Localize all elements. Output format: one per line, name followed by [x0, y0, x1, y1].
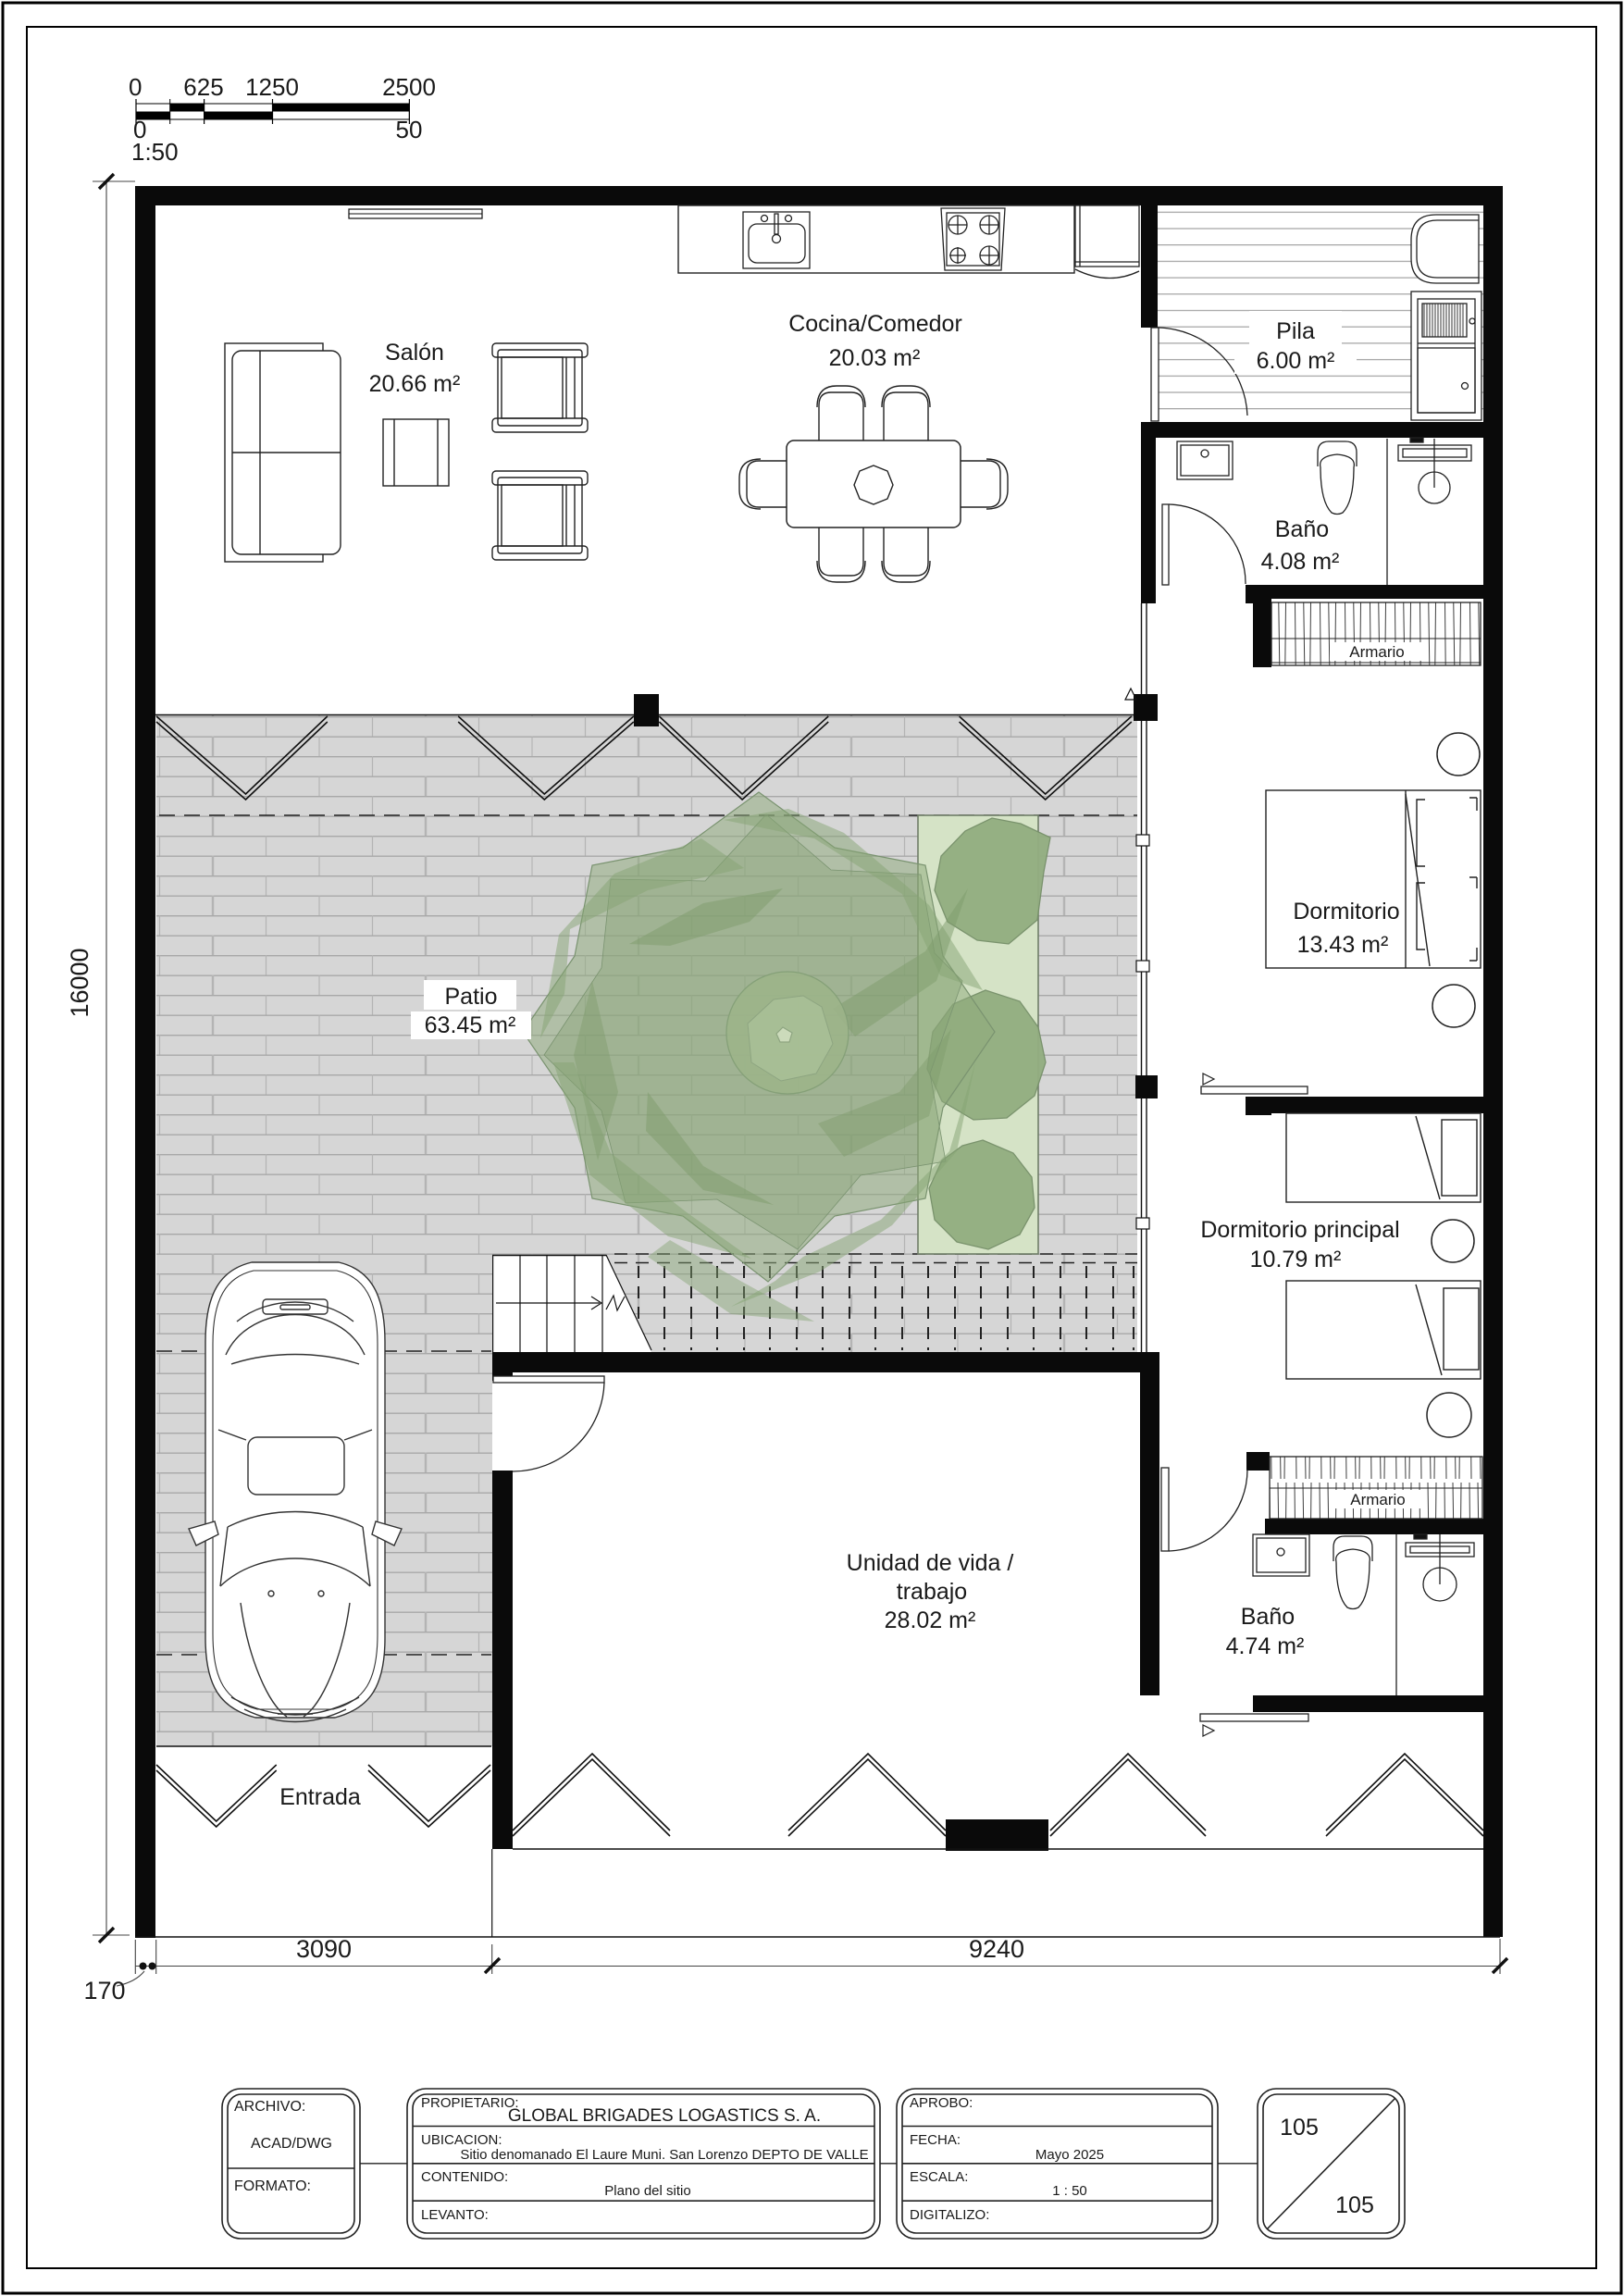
svg-text:4.74 m²: 4.74 m² [1226, 1633, 1305, 1659]
svg-text:9240: 9240 [969, 1935, 1024, 1963]
svg-text:ESCALA:: ESCALA: [910, 2169, 968, 2185]
svg-text:UBICACION:: UBICACION: [421, 2132, 502, 2148]
svg-text:0: 0 [129, 73, 142, 101]
svg-text:6.00 m²: 6.00 m² [1257, 348, 1335, 374]
svg-text:1 : 50: 1 : 50 [1052, 2183, 1087, 2199]
svg-text:Unidad de vida /: Unidad de vida / [847, 1550, 1014, 1576]
svg-text:Patio: Patio [445, 984, 498, 1010]
svg-text:50: 50 [396, 116, 423, 143]
svg-text:CONTENIDO:: CONTENIDO: [421, 2169, 508, 2185]
svg-text:Baño: Baño [1241, 1604, 1295, 1630]
svg-text:20.03 m²: 20.03 m² [829, 345, 921, 371]
svg-text:Dormitorio principal: Dormitorio principal [1200, 1217, 1399, 1243]
svg-text:28.02 m²: 28.02 m² [885, 1607, 976, 1633]
svg-text:APROBO:: APROBO: [910, 2095, 973, 2111]
svg-text:3090: 3090 [296, 1935, 352, 1963]
svg-text:Baño: Baño [1275, 516, 1329, 542]
svg-text:Armario: Armario [1350, 1491, 1406, 1508]
svg-text:Dormitorio: Dormitorio [1293, 899, 1399, 925]
svg-text:170: 170 [83, 1977, 125, 2004]
svg-text:Armario: Armario [1349, 643, 1405, 661]
svg-text:Mayo 2025: Mayo 2025 [1035, 2147, 1104, 2163]
svg-text:20.66 m²: 20.66 m² [369, 371, 461, 397]
svg-text:Entrada: Entrada [279, 1784, 361, 1810]
svg-text:ARCHIVO:: ARCHIVO: [234, 2099, 305, 2115]
svg-text:Sitio denomanado El Laure Muni: Sitio denomanado El Laure Muni. San Lore… [460, 2147, 868, 2163]
svg-text:LEVANTO:: LEVANTO: [421, 2207, 489, 2223]
svg-text:63.45 m²: 63.45 m² [425, 1012, 516, 1038]
svg-text:1:50: 1:50 [131, 138, 179, 166]
svg-text:105: 105 [1280, 2115, 1319, 2141]
svg-text:PROPIETARIO:: PROPIETARIO: [421, 2095, 519, 2111]
svg-text:GLOBAL BRIGADES LOGASTICS S. A: GLOBAL BRIGADES LOGASTICS S. A. [508, 2106, 821, 2126]
svg-text:trabajo: trabajo [897, 1579, 967, 1605]
svg-text:1250: 1250 [245, 73, 299, 101]
svg-text:105: 105 [1335, 2192, 1374, 2218]
svg-text:Cocina/Comedor: Cocina/Comedor [788, 311, 962, 337]
svg-text:DIGITALIZO:: DIGITALIZO: [910, 2207, 989, 2223]
svg-text:13.43 m²: 13.43 m² [1297, 932, 1389, 958]
svg-text:2500: 2500 [382, 73, 436, 101]
svg-text:Pila: Pila [1276, 318, 1315, 344]
svg-text:4.08 m²: 4.08 m² [1261, 549, 1340, 575]
svg-text:ACAD/DWG: ACAD/DWG [251, 2136, 332, 2152]
svg-text:625: 625 [183, 73, 223, 101]
svg-text:FORMATO:: FORMATO: [234, 2178, 311, 2194]
svg-text:FECHA:: FECHA: [910, 2132, 961, 2148]
svg-text:Salón: Salón [385, 340, 444, 366]
svg-text:16000: 16000 [66, 948, 93, 1017]
svg-text:Plano del sitio: Plano del sitio [604, 2183, 690, 2199]
svg-text:10.79 m²: 10.79 m² [1250, 1247, 1342, 1272]
